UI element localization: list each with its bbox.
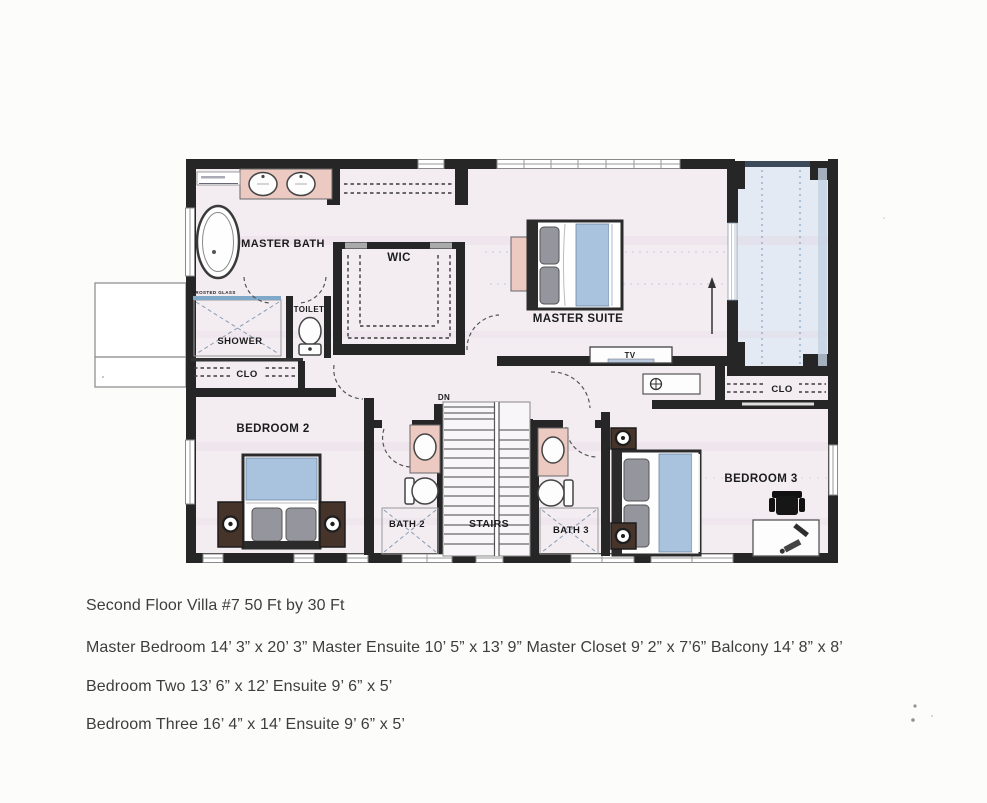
bed xyxy=(528,221,622,309)
label-stairs: STAIRS xyxy=(469,518,509,530)
nightstand xyxy=(218,502,243,547)
blanket xyxy=(659,454,692,552)
nightstand xyxy=(611,428,636,449)
window xyxy=(203,554,223,563)
desk xyxy=(753,520,819,556)
label-bath3: BATH 3 xyxy=(553,525,589,536)
sink xyxy=(414,434,436,460)
toilet-fixture xyxy=(299,318,321,356)
bed xyxy=(243,455,320,548)
toilet-fixture xyxy=(538,480,573,506)
exterior-roof-annex xyxy=(95,283,186,387)
nightstand xyxy=(320,502,345,547)
label-bedroom2: BEDROOM 2 xyxy=(236,423,309,435)
pillow xyxy=(624,459,649,501)
shelf-strip xyxy=(197,172,240,185)
window xyxy=(829,445,838,495)
scanned-floor-plan-page: { "floor_plan": { "labels": { "master_ba… xyxy=(0,0,987,798)
label-closet2: CLO xyxy=(236,369,257,380)
label-wic: WIC xyxy=(387,252,411,264)
scan-artifacts xyxy=(883,217,933,722)
label-frosted-glass: FROSTED GLASS xyxy=(192,290,235,295)
window xyxy=(294,554,314,563)
label-master-bath: MASTER BATH xyxy=(241,238,325,250)
pillow xyxy=(252,508,282,541)
window xyxy=(186,208,195,276)
caption-bedroom3-dimensions: Bedroom Three 16’ 4” x 14’ Ensuite 9’ 6”… xyxy=(86,716,405,734)
toilet-fixture xyxy=(405,478,438,504)
window xyxy=(418,160,444,169)
caption-floor-title: Second Floor Villa #7 50 Ft by 30 Ft xyxy=(86,597,345,615)
window xyxy=(186,440,195,504)
label-master-suite: MASTER SUITE xyxy=(533,313,623,325)
sink xyxy=(542,437,564,463)
light-fixture-symbol xyxy=(651,379,662,390)
bathtub xyxy=(197,206,239,278)
blanket xyxy=(246,458,317,500)
label-dn: DN xyxy=(438,393,450,402)
caption-master-dimensions: Master Bedroom 14’ 3” x 20’ 3” Master En… xyxy=(86,639,843,657)
label-toilet: TOILET xyxy=(294,305,325,314)
label-closet3: CLO xyxy=(771,384,792,395)
window xyxy=(347,554,368,563)
office-chair xyxy=(769,491,805,515)
window xyxy=(497,160,680,169)
double-vanity xyxy=(240,169,332,199)
label-shower: SHOWER xyxy=(217,336,262,347)
stairs xyxy=(443,402,530,556)
pillow xyxy=(540,267,559,304)
hall-cabinet xyxy=(643,374,700,394)
blanket xyxy=(576,224,609,306)
nightstand xyxy=(611,523,636,549)
sliding-glass-door xyxy=(728,223,737,300)
pillow xyxy=(540,227,559,264)
label-bath2: BATH 2 xyxy=(389,519,425,530)
label-tv: TV xyxy=(624,351,635,360)
caption-bedroom2-dimensions: Bedroom Two 13’ 6” x 12’ Ensuite 9’ 6” x… xyxy=(86,678,392,696)
label-bedroom3: BEDROOM 3 xyxy=(724,473,797,485)
pillow xyxy=(286,508,316,541)
frosted-glass-panel xyxy=(193,296,281,300)
nightstand xyxy=(511,237,528,291)
